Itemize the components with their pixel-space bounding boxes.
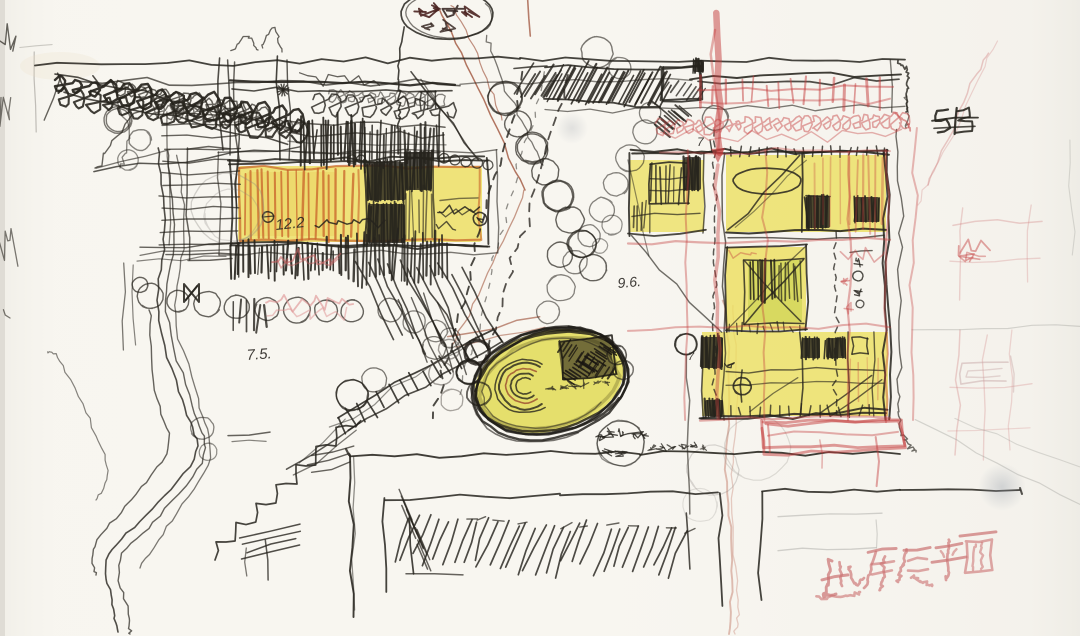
svg-text:7: 7 <box>688 351 695 363</box>
svg-text:12.2: 12.2 <box>275 214 306 234</box>
svg-text:7.5.: 7.5. <box>246 345 272 364</box>
svg-text:9.6.: 9.6. <box>617 273 642 291</box>
